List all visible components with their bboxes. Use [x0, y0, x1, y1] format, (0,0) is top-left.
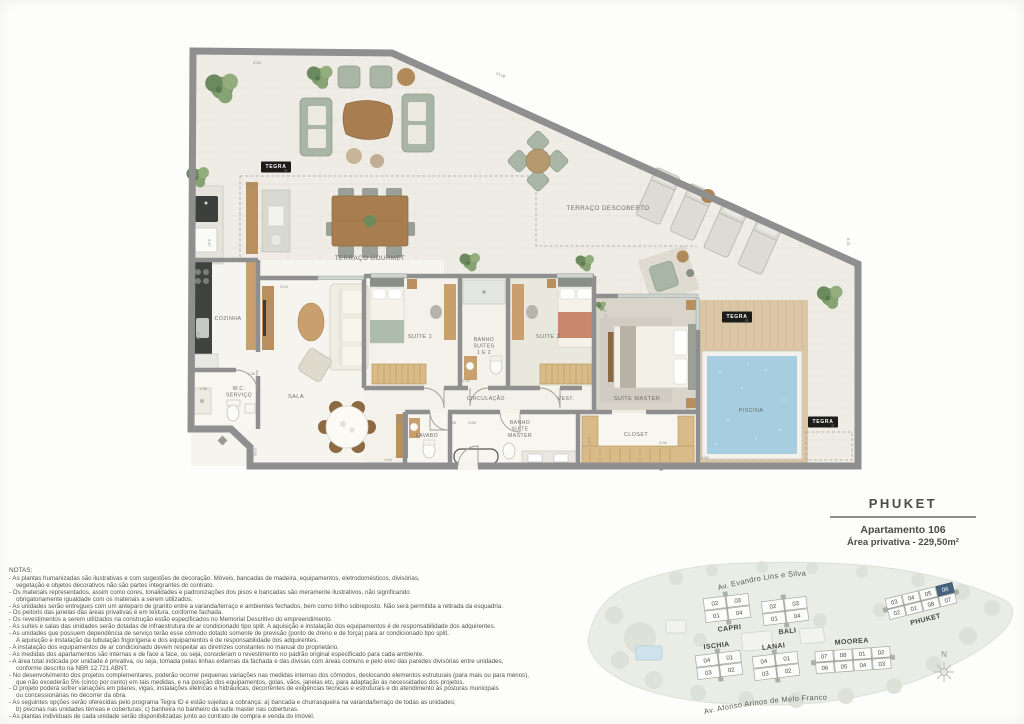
room-label: 1 E 2	[477, 350, 491, 356]
room-label: SUÍTES	[473, 343, 494, 350]
dimension-label: 8.31	[846, 238, 851, 247]
note-line: - As plantas individuais de cada unidade…	[9, 714, 529, 721]
compass-rose-icon	[934, 662, 954, 682]
room-label: CIRCULAÇÃO	[467, 395, 505, 402]
dimension-label: 5.97	[207, 239, 212, 248]
private-area: Área privativa - 229,50m²	[828, 537, 978, 548]
dimension-label: 1.98	[247, 371, 256, 376]
dimension-label: 2.36	[397, 416, 402, 425]
dimension-label: 3.56	[468, 420, 477, 425]
gourmet-dining-set	[326, 188, 415, 258]
dimension-label: 3.18	[592, 352, 597, 361]
pool-deck	[698, 300, 808, 464]
unit-number: 08	[840, 653, 848, 659]
dimension-label: 3.20	[280, 284, 289, 289]
tegra-program-text: ID	[745, 320, 749, 323]
notes-block: NOTAS: - As plantas humanizadas são ilus…	[9, 568, 529, 721]
tegra-badge: TEGRAID	[808, 417, 838, 428]
dimension-label: 4.72	[685, 403, 690, 412]
dimension-label: 2.97	[587, 437, 592, 446]
room-label: SALA	[288, 394, 304, 400]
tegra-program-text: ID	[831, 425, 835, 428]
room-label: SUÍTE 2	[536, 333, 560, 340]
site-plan: Av. Evandro Lins e Silva Av. Afonso Arin…	[588, 561, 1013, 716]
unit-number: 03	[878, 662, 886, 668]
dimension-label: 2.77	[603, 310, 608, 319]
room-label: W.C.	[233, 386, 246, 392]
pool-water	[707, 356, 797, 454]
brochure-page: TERRAÇO DESCOBERTOTERRAÇO GOURMETCOZINHA…	[0, 0, 1024, 724]
dimension-label: 4.80	[701, 455, 710, 460]
building-name: PHUKET	[828, 496, 978, 511]
unit-number: 01	[859, 651, 867, 657]
unit-number: 05	[840, 664, 848, 670]
unit-number: 02	[878, 650, 886, 656]
room-label: CLOSET	[624, 432, 649, 438]
tegra-program-text: ID	[284, 170, 288, 173]
room-label: MASTER	[508, 433, 532, 439]
dimension-label: 2.69	[462, 378, 471, 383]
room-label: SUÍTE 1	[408, 333, 432, 340]
room-label: LAVABO	[416, 433, 438, 439]
apartment-number: Apartamento 106	[828, 524, 978, 536]
room-label: SERVIÇO	[226, 393, 252, 399]
notes-title: NOTAS:	[9, 568, 529, 575]
apartment-floorplan: TERRAÇO DESCOBERTOTERRAÇO GOURMETCOZINHA…	[185, 40, 860, 471]
room-label: SUÍTE MASTER	[614, 395, 661, 402]
room-label: PISCINA	[739, 408, 764, 414]
room-label: VEST.	[558, 396, 574, 402]
room-label: TERRAÇO DESCOBERTO	[566, 205, 649, 212]
dimension-label: 4.54	[384, 457, 393, 462]
tegra-badge: TEGRAID	[722, 312, 752, 323]
dimension-label: 1.58	[199, 386, 208, 391]
unit-number: 06	[822, 666, 830, 672]
room-label: SUÍTE	[511, 426, 528, 433]
notes-lines: - As plantas humanizadas são ilustrativa…	[9, 576, 529, 721]
tegra-badge: TEGRAID	[261, 162, 291, 173]
dimension-label: 1.58	[448, 420, 457, 425]
unit-number: 04	[859, 663, 867, 669]
dimension-label: 3.86	[196, 332, 201, 341]
room-label: BANHO	[510, 420, 530, 426]
unit-number: 07	[821, 654, 829, 660]
title-block: PHUKET Apartamento 106 Área privativa - …	[828, 496, 978, 548]
room-label: BANHO	[474, 337, 494, 343]
dimension-label: 13.28	[495, 70, 507, 79]
dimension-label: 5.65	[253, 448, 258, 457]
compass-n-label: N	[941, 650, 947, 659]
dimension-label: 3.39	[659, 440, 668, 445]
title-divider	[830, 516, 976, 518]
dimension-label: 1.64	[245, 181, 254, 186]
room-label: TERRAÇO GOURMET	[335, 255, 405, 262]
room-label: COZINHA	[215, 316, 242, 322]
dimension-label: 5.39	[253, 60, 262, 65]
